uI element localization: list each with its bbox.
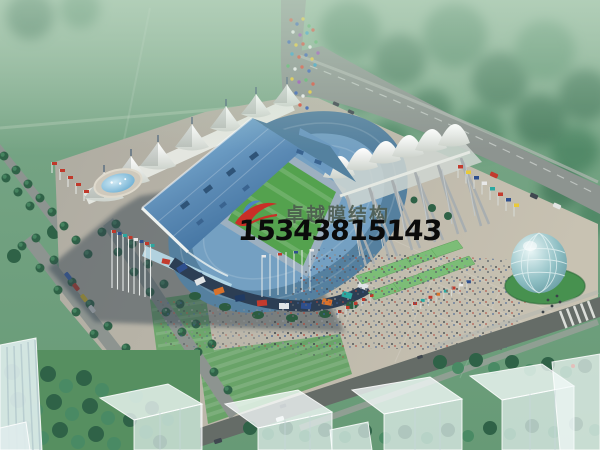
stadium-aerial-rendering: 卓越膜结构 15343815143 bbox=[0, 0, 600, 450]
aerial-scene bbox=[0, 0, 600, 450]
glass-slab-southwest bbox=[0, 338, 42, 450]
dome-shell bbox=[511, 233, 567, 293]
mist-overlay bbox=[0, 0, 600, 150]
